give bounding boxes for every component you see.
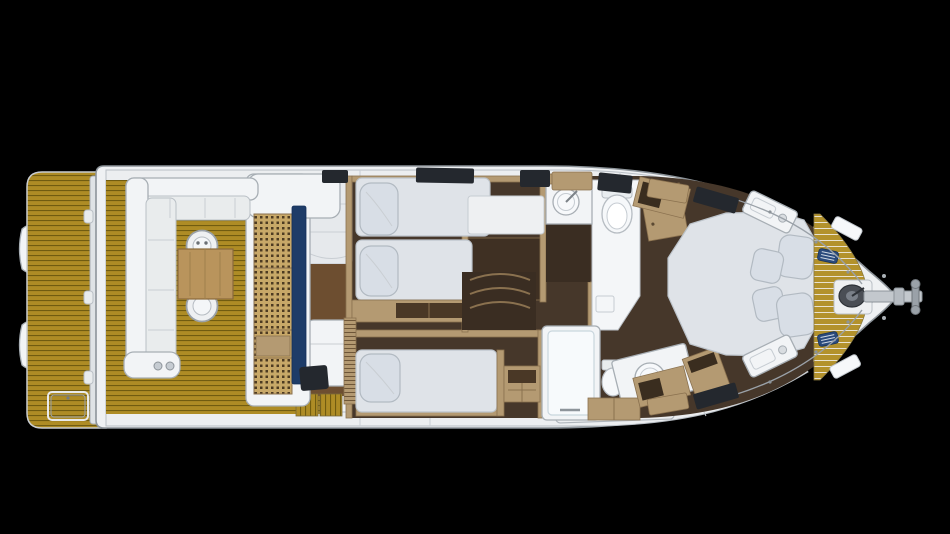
pillow bbox=[749, 247, 785, 285]
pillow bbox=[360, 183, 398, 235]
cabin-ladder bbox=[344, 318, 356, 404]
vent-locker bbox=[416, 167, 474, 183]
sofa-seat-left bbox=[146, 198, 176, 366]
wall bbox=[497, 350, 504, 416]
cockpit-chair-cushion bbox=[193, 297, 211, 315]
sofa-back-left bbox=[126, 178, 148, 370]
pod-mount bbox=[84, 291, 93, 304]
cupholder bbox=[166, 362, 174, 370]
deck-fitting bbox=[882, 274, 886, 278]
companionway-steps bbox=[462, 272, 536, 330]
day-head-floor bbox=[546, 224, 590, 282]
yacht-floorplan bbox=[0, 0, 950, 534]
chair-slot bbox=[204, 241, 207, 244]
stairwell bbox=[462, 272, 536, 330]
floorplan-canvas bbox=[0, 0, 950, 534]
deck-fitting bbox=[882, 316, 886, 320]
pod-mount bbox=[84, 210, 93, 223]
side-cabinet bbox=[552, 172, 592, 190]
swim-platform bbox=[27, 172, 106, 428]
vent-locker bbox=[520, 170, 550, 187]
roller-plate bbox=[894, 288, 904, 305]
berth-infill-board bbox=[468, 196, 544, 234]
wall bbox=[540, 176, 546, 302]
vent-locker bbox=[597, 172, 633, 193]
galley-appliance bbox=[299, 365, 329, 391]
toilet-seat bbox=[607, 203, 627, 229]
vent-locker bbox=[322, 170, 348, 183]
galley-navy-counter bbox=[292, 206, 306, 384]
pillow bbox=[360, 246, 398, 296]
pod-mount bbox=[84, 371, 93, 384]
cupholder bbox=[154, 362, 162, 370]
pillow bbox=[360, 354, 400, 402]
companionway-step bbox=[320, 394, 342, 416]
galley-wood-panel bbox=[256, 336, 290, 356]
galley-perforated-counter bbox=[254, 214, 292, 394]
anchor-fluke bbox=[911, 306, 920, 315]
chair-slot bbox=[196, 241, 199, 244]
hatch-latch bbox=[66, 396, 69, 399]
shelf-slot bbox=[508, 370, 536, 383]
shower-glass bbox=[548, 331, 594, 415]
anchor-fluke bbox=[911, 280, 920, 289]
wall bbox=[352, 330, 544, 337]
pillow bbox=[775, 292, 816, 339]
